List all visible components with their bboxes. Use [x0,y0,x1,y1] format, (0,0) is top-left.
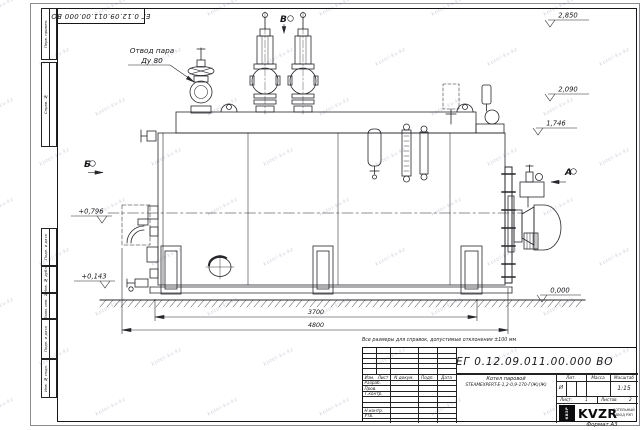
sheets-label: Листов [601,397,617,402]
tblock-line [597,396,598,403]
tblock-line [363,385,456,386]
tblock-line [376,348,377,374]
scale-header: Масштаб [610,375,638,380]
tblock-line [390,348,391,423]
doc-number-top: ЕГ 0.12.09.011.00.000 ВО [51,12,150,20]
sheets-value: 2 [629,397,632,402]
sheet-label: Лист [560,397,571,402]
brand-badge-text: КВЗР [565,407,569,419]
margin-stamp: Справ. № [41,62,57,147]
tblock-line [363,380,456,381]
tblock-line [456,348,457,423]
tblock-line [363,407,456,408]
doc-number-top-box: ЕГ 0.12.09.011.00.000 ВО [57,8,145,24]
title-block: ЕГ 0.12.09.011.00.000 ВО Изм. Лист N док… [362,347,637,422]
sheet-value: 1 [585,397,588,402]
drawing-sheet: kotel-kv.kzkotel-kv.kzkotel-kv.kzkotel-k… [0,0,644,430]
tblock-line [576,381,577,396]
lit-value: И [556,385,566,391]
title-doc-number: ЕГ 0.12.09.011.00.000 ВО [456,352,638,372]
brand-tagline-1: КОТЕЛЬНЫЙ [613,408,635,412]
format-label: Формат А3 [552,422,644,428]
tblock-line [363,391,456,392]
tblock-line [556,373,557,423]
brand-tagline-2: ЗАВОД РЭП [613,413,633,417]
stamp-label: Инв. № дубл. [42,267,49,292]
tblock-line [363,374,638,375]
stamp-divider [49,294,50,318]
tblock-line [363,402,456,403]
mass-header: Масса [586,375,610,380]
stamp-divider [49,360,50,397]
stamp-label: Справ. № [42,63,49,146]
product-name-line1: Котел паровой [456,376,556,382]
stamp-label: Взам. инв. № [42,294,49,318]
stamp-label: Подп. и дата [42,320,49,358]
margin-stamp: Инв. № дубл. [41,266,57,293]
margin-stamp: Взам. инв. № [41,293,57,319]
stamp-divider [49,9,50,59]
stamp-label: Инв. № подл. [42,360,49,397]
stamp-divider [49,229,50,265]
tblock-line [610,373,611,396]
tblock-line [363,396,456,397]
stamp-label: Перв. примен. [42,9,49,59]
stamp-divider [49,267,50,292]
margin-stamp: Перв. примен. [41,8,57,60]
tblock-line [437,348,438,423]
tolerance-note: Все размеры для справок, допустимые откл… [362,338,572,343]
tblock-line [363,418,456,419]
stamp-label: Подп. и дата [42,229,49,265]
stamp-divider [49,63,50,146]
margin-stamp: Подп. и дата [41,228,57,266]
tblock-line [556,381,638,382]
tblock-line [418,348,419,423]
brand-name: KVZR [578,406,617,421]
margin-stamp: Инв. № подл. [41,359,57,398]
brand-badge: КВЗР [559,405,575,421]
product-name-line2: STEAMEXPERT-Е-1,2-0,9-170-Г(Ж)(Ж) [456,383,556,388]
scale-value: 1:15 [610,385,638,392]
lit-header: Лит. [556,375,586,380]
tblock-line [556,403,638,404]
tblock-line [566,381,567,396]
margin-stamp: Подп. и дата [41,319,57,359]
tblock-line [586,373,587,396]
tblock-line [363,413,456,414]
stamp-divider [49,320,50,358]
